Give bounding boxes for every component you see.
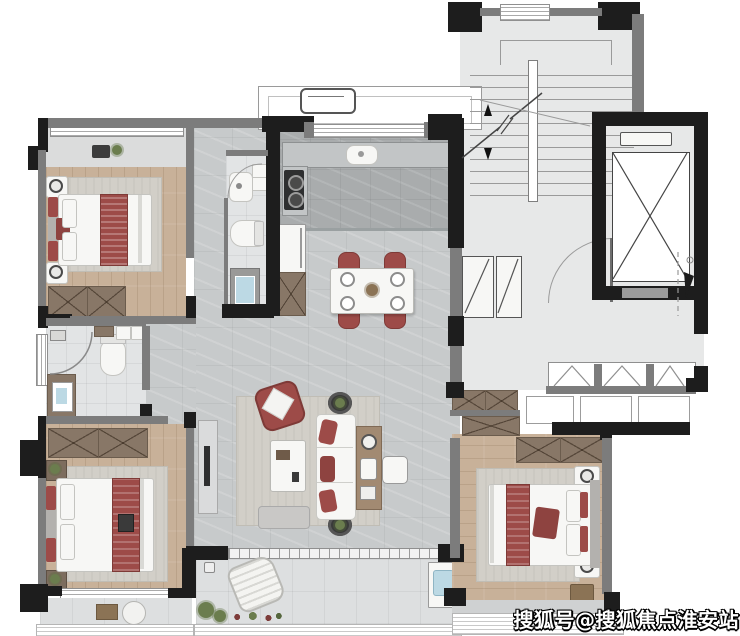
bedroom1-pillow-bottom	[62, 232, 77, 261]
corridor-window-jamb-1	[594, 364, 602, 388]
wall-segment	[46, 318, 146, 326]
wall-segment	[450, 346, 462, 384]
bedroom2-runner-detail	[118, 514, 134, 532]
balcony-plant-2	[214, 610, 226, 622]
wall-segment	[38, 478, 46, 586]
balcony-plant-1	[198, 602, 214, 618]
wall-segment	[184, 412, 196, 428]
stair-window	[500, 4, 550, 21]
bedroom1-bay-decor-tray	[92, 145, 110, 158]
kitchen-burner-2	[288, 192, 304, 208]
coffee-table-item	[292, 472, 299, 482]
ac-outdoor-unit	[300, 88, 356, 114]
wall-segment	[168, 588, 190, 598]
wall-segment	[186, 126, 194, 258]
shoe-cabinet-2	[496, 256, 522, 318]
ac-unit-detail	[308, 96, 344, 97]
dining-plate-2	[340, 296, 355, 311]
balcony-left-railing	[36, 624, 194, 636]
sofa-cushion-2	[320, 456, 335, 482]
bathroom2-washer-a	[116, 326, 131, 340]
planter-box-1	[526, 396, 574, 424]
bedroom2-pillow-top	[60, 484, 75, 520]
bedroom2-plant-top	[50, 464, 60, 474]
kitchen-living-divider	[282, 228, 448, 231]
wall-segment	[602, 438, 612, 594]
bedroom2-pillow-bottom	[60, 524, 75, 560]
corridor-window-jamb-2	[646, 364, 654, 388]
wall-segment	[38, 118, 188, 128]
stair-upper-outline	[500, 40, 612, 65]
planter-box-2	[580, 396, 632, 424]
bedroom1-lamp-top	[49, 179, 63, 193]
tv	[204, 446, 210, 486]
wall-segment	[304, 122, 314, 138]
elevator-wall-top	[592, 112, 708, 126]
dining-plate-1	[340, 272, 355, 287]
balcony-left-basin	[122, 601, 146, 625]
dining-plate-4	[390, 296, 405, 311]
living-coffee-table	[270, 440, 306, 492]
living-side-plant-bottom	[335, 520, 345, 530]
wall-segment	[222, 304, 274, 318]
bedroom3-bed-runner	[506, 484, 530, 566]
bedroom2-headboard-pad-top	[46, 486, 56, 510]
wall-segment	[38, 150, 46, 318]
bathroom2-sink-water	[56, 388, 67, 404]
wall-segment	[186, 428, 194, 548]
bedroom3-pillow-bottom	[566, 524, 581, 556]
bedroom3-throw	[532, 506, 560, 539]
wall-segment	[546, 386, 696, 394]
bathroom1-shower-water	[235, 276, 255, 304]
bathroom2-shower-head	[50, 330, 66, 341]
bedroom2-headboard-mid	[46, 510, 56, 538]
bedroom1-bed-runner	[100, 194, 128, 266]
elevator-cab	[612, 152, 690, 282]
wall-segment	[446, 382, 464, 398]
bathroom2-toilet	[100, 340, 126, 376]
elevator-door	[622, 288, 668, 298]
wall-segment	[46, 416, 168, 424]
wall-segment	[186, 546, 228, 560]
bedroom3-wardrobe-top	[516, 437, 604, 463]
elevator-wall-right	[694, 124, 708, 300]
wall-segment	[632, 14, 644, 116]
wall-segment	[448, 2, 482, 32]
wall-segment	[450, 438, 460, 558]
wall-segment	[266, 130, 280, 316]
bathroom1-toilet-tank	[254, 221, 264, 246]
bedroom2-blanket-fold	[140, 479, 144, 569]
console-lamp	[361, 434, 377, 450]
bedroom1-blanket-fold	[138, 195, 142, 263]
bedroom2-plant-bottom	[50, 574, 60, 584]
wall-segment	[20, 440, 46, 476]
bedroom3-pillow-top	[566, 490, 581, 522]
kitchen-sink-faucet	[358, 151, 364, 157]
elevator-wall-left	[592, 124, 606, 300]
balcony-flower-cluster	[232, 612, 284, 622]
bedroom1-headboard-pad-bottom	[48, 241, 58, 261]
wall-segment	[38, 586, 62, 596]
balcony-left-tray	[96, 604, 118, 620]
elevator-call-panel	[620, 132, 672, 146]
watermark-text: 搜狐号@搜狐焦点淮安站	[514, 604, 740, 633]
kitchen-pantry	[276, 272, 306, 316]
kitchen-burner-1	[288, 175, 304, 191]
bathroom2-cabinet	[94, 326, 114, 337]
bedroom1-pillow-top	[62, 199, 77, 228]
living-stool	[382, 456, 408, 484]
planter-box-3	[638, 396, 690, 424]
bedroom3-cushion-bottom	[580, 526, 588, 552]
balcony-main-railing	[194, 624, 462, 636]
dining-plate-3	[390, 272, 405, 287]
bedroom1-headboard-pad-top	[48, 197, 58, 217]
coffee-table-book	[276, 450, 290, 460]
living-bench	[258, 506, 310, 529]
bedroom1-bay-plant	[112, 145, 122, 155]
floor-plan: 搜狐号@搜狐焦点淮安站	[0, 0, 740, 636]
wall-segment	[226, 150, 268, 156]
console-books	[360, 458, 377, 480]
sofa-seat-line-2	[317, 482, 353, 483]
wall-segment	[686, 378, 708, 392]
bedroom3-blanket-fold	[490, 485, 494, 563]
wall-segment	[444, 588, 466, 606]
stair-stringer	[528, 60, 538, 202]
wall-segment	[552, 422, 690, 435]
kitchen-window	[312, 124, 428, 138]
wall-segment	[142, 326, 150, 390]
bedroom2-wardrobe	[48, 428, 148, 458]
bedroom3-headboard	[590, 480, 600, 568]
living-side-plant-top	[335, 398, 345, 408]
wall-segment	[450, 248, 462, 320]
bedroom2-headboard-pad-bottom	[46, 538, 56, 562]
wall-segment	[188, 118, 266, 128]
bedroom3-cushion-top	[580, 492, 588, 518]
balcony-drain-left	[204, 562, 215, 573]
stair-treads	[470, 64, 634, 196]
wall-segment	[450, 410, 520, 416]
sofa-seat-line-1	[317, 447, 353, 448]
bathroom1-faucet	[236, 183, 242, 189]
kitchen-fridge-handle	[300, 228, 302, 268]
shoe-cabinet-1	[462, 256, 494, 318]
wall-segment	[694, 300, 708, 334]
console-tray	[360, 486, 376, 500]
wall-segment	[428, 114, 462, 140]
wall-segment	[448, 316, 464, 346]
bedroom1-lamp-bottom	[49, 265, 63, 279]
bedroom3-wardrobe-left	[462, 416, 520, 436]
dining-centerpiece	[366, 284, 378, 296]
wall-segment	[186, 296, 196, 318]
wall-segment	[224, 198, 228, 308]
